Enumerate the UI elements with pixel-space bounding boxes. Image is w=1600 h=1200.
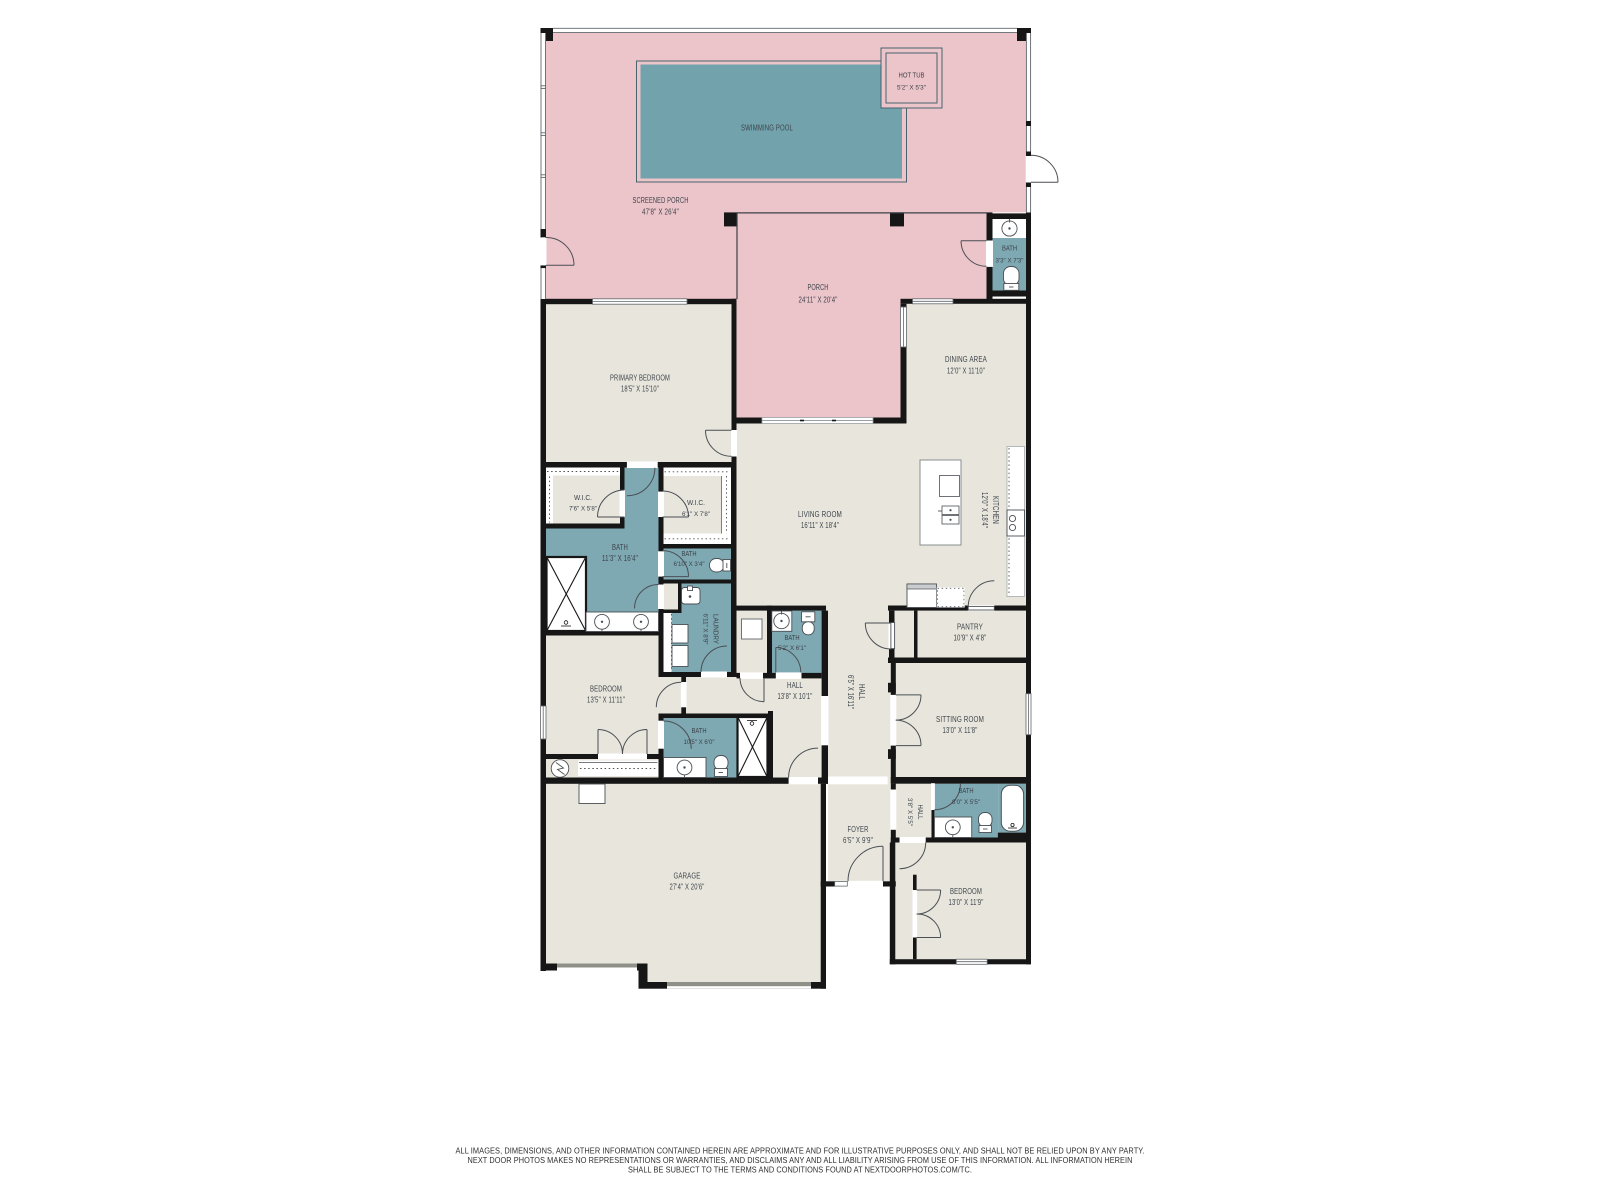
svg-text:ALL IMAGES, DIMENSIONS, AND OT: ALL IMAGES, DIMENSIONS, AND OTHER INFORM… <box>456 1146 1145 1156</box>
svg-text:BEDROOM: BEDROOM <box>950 886 982 896</box>
svg-text:HOT TUB: HOT TUB <box>899 73 925 80</box>
svg-text:10'5" X 6'0": 10'5" X 6'0" <box>684 739 716 746</box>
svg-text:BATH: BATH <box>1002 246 1017 253</box>
svg-text:13'5" X 11'11": 13'5" X 11'11" <box>587 696 625 705</box>
svg-text:LAUNDRY: LAUNDRY <box>712 614 719 644</box>
svg-text:SWIMMING POOL: SWIMMING POOL <box>741 123 793 133</box>
svg-text:8'0" X 5'5": 8'0" X 5'5" <box>952 799 981 806</box>
svg-text:6'5" X 9'9": 6'5" X 9'9" <box>843 836 873 845</box>
svg-text:13'0" X 11'9": 13'0" X 11'9" <box>949 898 984 907</box>
svg-text:FOYER: FOYER <box>848 824 869 834</box>
svg-text:5'2" X 5'3": 5'2" X 5'3" <box>897 85 927 92</box>
svg-text:16'11" X 18'4": 16'11" X 18'4" <box>801 521 839 530</box>
svg-text:7'6" X 5'8": 7'6" X 5'8" <box>569 506 598 513</box>
svg-text:SCREENED PORCH: SCREENED PORCH <box>633 195 689 205</box>
svg-text:DINING AREA: DINING AREA <box>945 354 987 364</box>
svg-text:11'3" X 16'4": 11'3" X 16'4" <box>602 554 638 563</box>
svg-text:27'4" X 20'6": 27'4" X 20'6" <box>670 883 705 892</box>
svg-text:LIVING ROOM: LIVING ROOM <box>798 509 842 519</box>
svg-text:W.I.C.: W.I.C. <box>574 495 592 502</box>
svg-text:HALL: HALL <box>857 684 867 700</box>
svg-text:6'11" X 8'9": 6'11" X 8'9" <box>702 614 709 646</box>
svg-text:NEXT DOOR PHOTOS MAKES NO REPR: NEXT DOOR PHOTOS MAKES NO REPRESENTATION… <box>468 1155 1133 1165</box>
svg-text:6'1" X 7'8": 6'1" X 7'8" <box>682 511 711 518</box>
svg-text:BATH: BATH <box>959 788 974 795</box>
svg-text:47'8" X 26'4": 47'8" X 26'4" <box>642 208 679 217</box>
svg-text:24'11" X 20'4": 24'11" X 20'4" <box>799 296 838 305</box>
svg-text:GARAGE: GARAGE <box>674 871 701 881</box>
svg-text:PANTRY: PANTRY <box>957 622 983 632</box>
svg-text:18'5" X 15'10": 18'5" X 15'10" <box>621 385 659 394</box>
svg-text:5'2" X 6'1": 5'2" X 6'1" <box>778 645 807 652</box>
svg-text:BATH: BATH <box>612 542 628 552</box>
svg-text:BATH: BATH <box>692 728 707 735</box>
svg-text:6'5" X 16'11": 6'5" X 16'11" <box>846 675 855 709</box>
svg-text:HALL: HALL <box>787 680 803 690</box>
svg-text:6'10" X 3'4": 6'10" X 3'4" <box>674 561 706 568</box>
svg-text:10'9" X 4'8": 10'9" X 4'8" <box>954 634 987 643</box>
svg-text:3'8" X 5'5": 3'8" X 5'5" <box>906 798 913 827</box>
svg-text:KITCHEN: KITCHEN <box>991 496 1001 524</box>
svg-text:PORCH: PORCH <box>808 282 829 292</box>
svg-text:HALL: HALL <box>916 805 923 820</box>
svg-text:SHALL BE SUBJECT TO THE TERMS: SHALL BE SUBJECT TO THE TERMS AND CONDIT… <box>628 1165 972 1175</box>
svg-text:BATH: BATH <box>785 635 800 642</box>
svg-text:13'8" X 10'1": 13'8" X 10'1" <box>778 692 813 701</box>
svg-text:12'0" X 11'10": 12'0" X 11'10" <box>947 367 985 376</box>
svg-text:SITTING ROOM: SITTING ROOM <box>936 714 984 724</box>
svg-text:BEDROOM: BEDROOM <box>590 684 622 694</box>
svg-text:3'3" X 7'3": 3'3" X 7'3" <box>996 258 1025 265</box>
svg-text:PRIMARY BEDROOM: PRIMARY BEDROOM <box>610 373 670 383</box>
svg-text:13'0" X 11'8": 13'0" X 11'8" <box>943 726 978 735</box>
svg-text:BATH: BATH <box>682 551 697 558</box>
svg-text:12'0" X 18'4": 12'0" X 18'4" <box>980 492 989 528</box>
svg-text:W.I.C.: W.I.C. <box>687 500 705 507</box>
